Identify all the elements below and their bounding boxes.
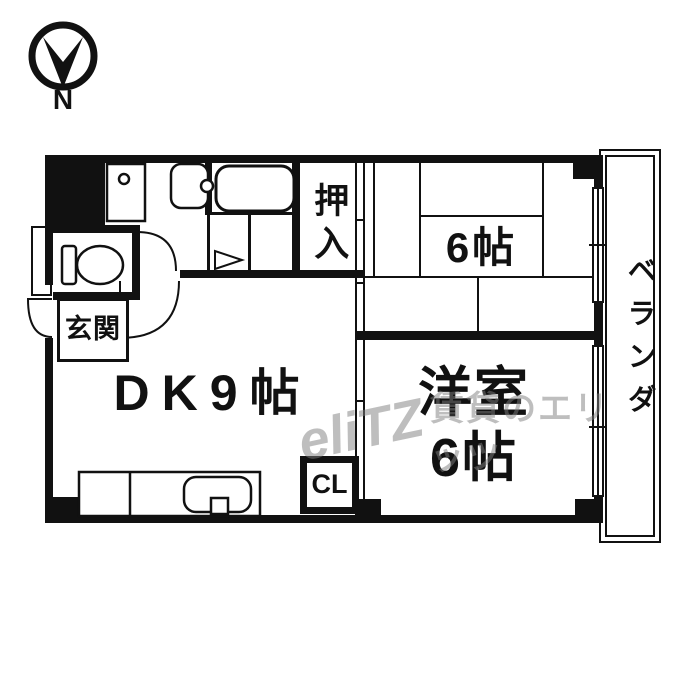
room-label-veranda: ベランダ [619,238,657,443]
north-label: N [50,86,76,114]
room-label-tatami: 6帖 [419,220,544,276]
room-label-dk: DK9帖 [85,362,340,424]
washer-pan-icon [107,164,145,221]
room-label-western-1: 洋室 [378,362,570,426]
room-label-western-2: 6帖 [378,428,570,490]
toilet-tank-icon [62,246,76,284]
window2-tick [589,426,607,428]
front-door-arc-icon [28,299,52,337]
window-western-room [592,345,604,497]
washbasin-faucet-icon [201,180,213,192]
toilet-bowl-icon [77,246,123,284]
washer-drain-icon [119,174,129,184]
washroom-door-arc-icon [137,232,176,271]
bath-door-icon [215,251,242,269]
window1-tick [589,244,607,246]
sink-faucet-icon [211,498,228,514]
room-label-cl: CL [307,463,352,507]
bathtub-icon [216,166,294,211]
room-label-entrance: 玄関 [57,298,129,362]
room-label-oshiire: 押入 [307,175,349,275]
floor-plan: N [0,0,700,700]
